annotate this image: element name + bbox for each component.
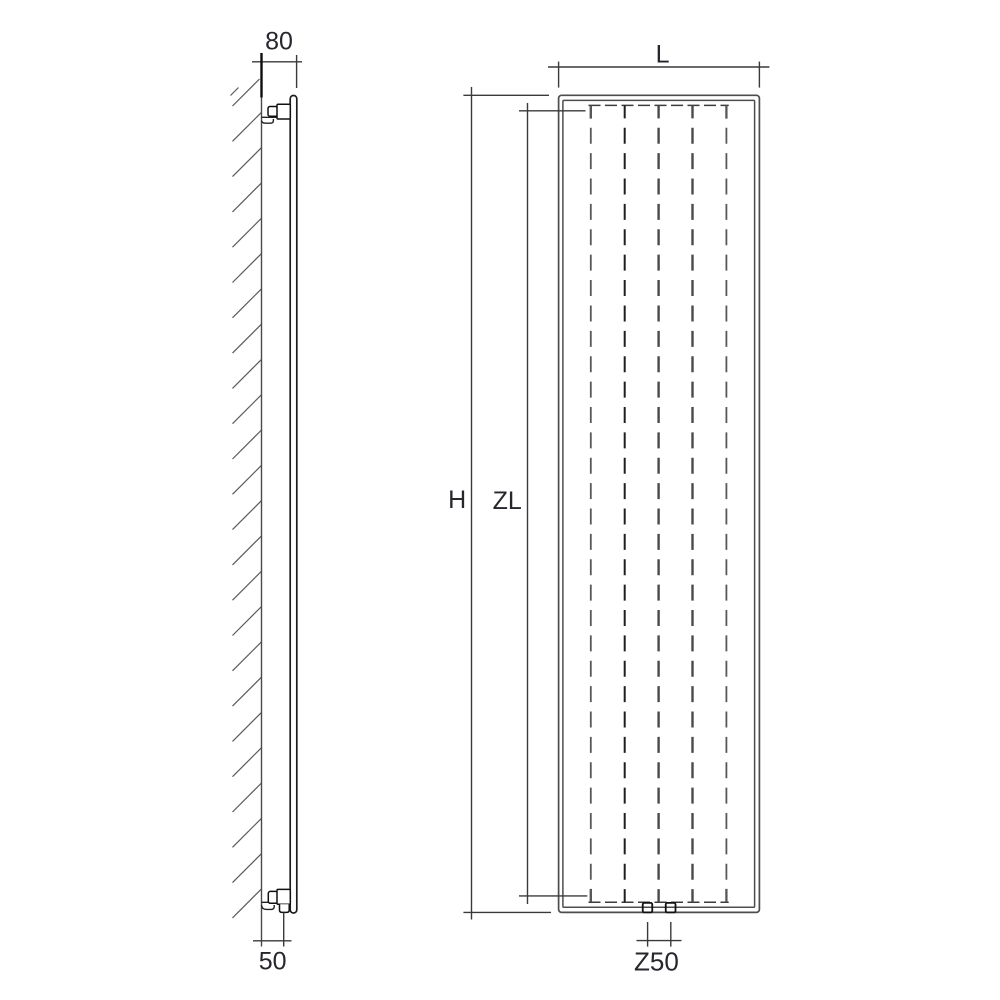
- svg-text:50: 50: [259, 948, 287, 976]
- svg-text:ZL: ZL: [493, 487, 522, 515]
- svg-text:H: H: [448, 486, 466, 514]
- svg-text:80: 80: [265, 28, 293, 56]
- svg-text:L: L: [656, 41, 670, 69]
- svg-text:Z50: Z50: [634, 947, 679, 977]
